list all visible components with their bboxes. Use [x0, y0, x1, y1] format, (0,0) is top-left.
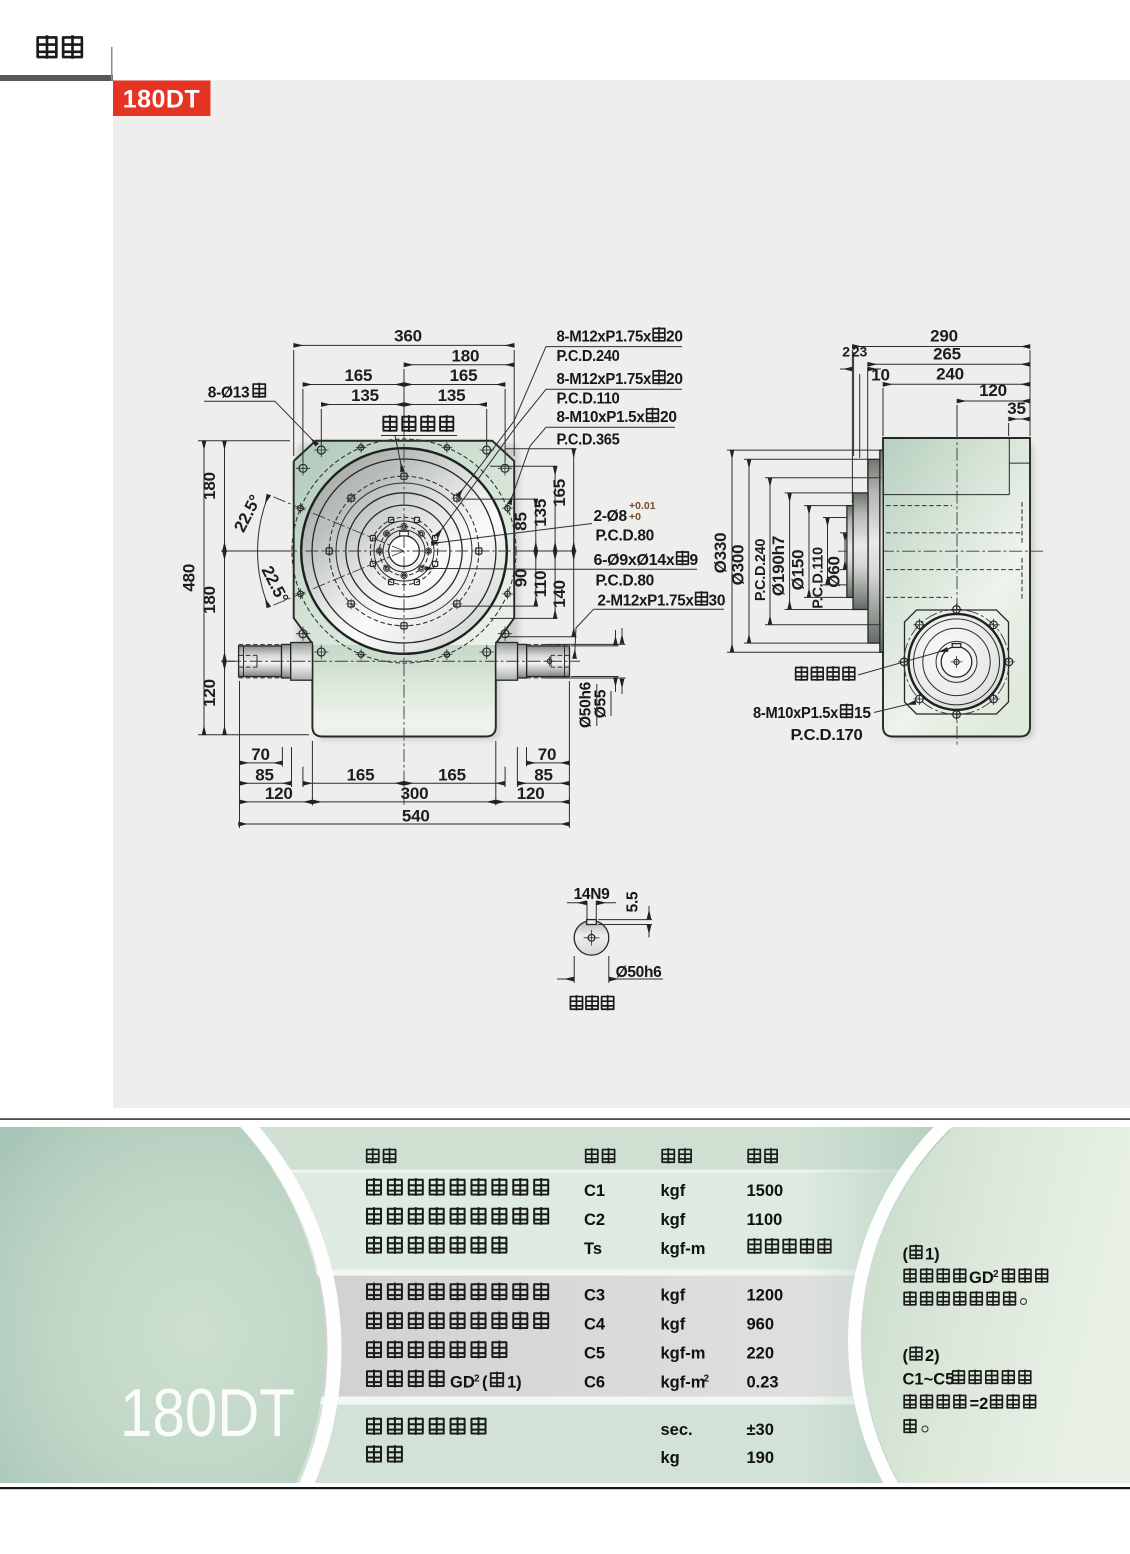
svg-text:8-M10xP1.5x: 8-M10xP1.5x — [753, 705, 839, 722]
svg-text:kgf: kgf — [661, 1182, 686, 1200]
svg-text:1100: 1100 — [747, 1211, 783, 1229]
svg-text:2: 2 — [842, 344, 850, 360]
svg-text:360: 360 — [394, 327, 422, 346]
svg-text:C3: C3 — [584, 1287, 605, 1305]
svg-text:240: 240 — [936, 364, 964, 383]
svg-text:(: ( — [482, 1374, 488, 1392]
svg-text:9: 9 — [690, 552, 699, 569]
svg-text:Ø150: Ø150 — [789, 550, 808, 591]
svg-text:8-M12xP1.75x: 8-M12xP1.75x — [557, 371, 652, 388]
svg-text:120: 120 — [200, 679, 219, 707]
svg-text:kgf-m: kgf-m — [661, 1345, 706, 1363]
svg-text:±30: ±30 — [747, 1421, 774, 1439]
svg-text:35: 35 — [1007, 399, 1026, 418]
svg-text:kg: kg — [661, 1449, 680, 1467]
svg-text:kgf: kgf — [661, 1287, 686, 1305]
svg-text:70: 70 — [251, 745, 270, 764]
svg-text:2-M12xP1.75x: 2-M12xP1.75x — [598, 593, 695, 610]
svg-text:+0: +0 — [629, 511, 641, 523]
svg-text:1): 1) — [507, 1374, 522, 1392]
svg-text:P.C.D.240: P.C.D.240 — [753, 539, 769, 602]
svg-text:2: 2 — [474, 1374, 480, 1385]
svg-text:C2: C2 — [584, 1211, 605, 1229]
svg-text:kgf: kgf — [661, 1316, 686, 1334]
svg-text:220: 220 — [747, 1345, 775, 1363]
svg-text:P.C.D.110: P.C.D.110 — [557, 390, 620, 407]
svg-text:P.C.D.365: P.C.D.365 — [557, 431, 621, 448]
svg-text:C1~C5: C1~C5 — [903, 1371, 955, 1389]
svg-text:P.C.D.80: P.C.D.80 — [596, 528, 655, 545]
svg-text:(: ( — [903, 1246, 909, 1264]
svg-text:C1: C1 — [584, 1182, 605, 1200]
svg-text:Ts: Ts — [584, 1240, 602, 1258]
svg-text:Ø60: Ø60 — [825, 556, 844, 588]
svg-text:14N9: 14N9 — [574, 886, 611, 903]
svg-text:90: 90 — [512, 569, 531, 588]
svg-text:540: 540 — [402, 806, 430, 825]
svg-text:Ø190h7: Ø190h7 — [769, 536, 788, 596]
svg-text:kgf: kgf — [661, 1211, 686, 1229]
svg-text:=2: =2 — [970, 1395, 989, 1413]
svg-text:kgf-m: kgf-m — [661, 1374, 706, 1392]
svg-text:135: 135 — [531, 499, 550, 527]
svg-text:165: 165 — [450, 366, 478, 385]
svg-text:P.C.D.240: P.C.D.240 — [557, 348, 620, 365]
svg-text:30: 30 — [709, 593, 726, 610]
svg-text:10: 10 — [871, 366, 890, 385]
svg-text:0.23: 0.23 — [747, 1374, 779, 1392]
svg-text:85: 85 — [255, 766, 274, 785]
svg-text:300: 300 — [401, 784, 429, 803]
svg-text:8-M12xP1.75x: 8-M12xP1.75x — [557, 329, 652, 346]
svg-text:960: 960 — [747, 1316, 775, 1334]
svg-text:120: 120 — [265, 784, 293, 803]
svg-text:kgf-m: kgf-m — [661, 1240, 706, 1258]
svg-text:20: 20 — [660, 409, 677, 426]
svg-text:Ø55: Ø55 — [593, 689, 610, 718]
svg-text:P.C.D.80: P.C.D.80 — [596, 573, 655, 590]
svg-text:GD: GD — [450, 1374, 475, 1392]
svg-text:P.C.D.170: P.C.D.170 — [791, 727, 863, 744]
svg-text:180: 180 — [200, 472, 219, 500]
svg-text:8-Ø13: 8-Ø13 — [208, 385, 250, 402]
svg-text:165: 165 — [438, 766, 466, 785]
svg-text:Ø50h6: Ø50h6 — [616, 964, 663, 981]
svg-text:sec.: sec. — [661, 1421, 693, 1439]
svg-text:20: 20 — [666, 371, 683, 388]
svg-text:165: 165 — [550, 479, 569, 507]
svg-text:Ø300: Ø300 — [729, 545, 748, 586]
svg-text:180DT: 180DT — [120, 1375, 295, 1451]
svg-text:8-M10xP1.5x: 8-M10xP1.5x — [557, 409, 646, 426]
svg-text:15: 15 — [854, 705, 871, 722]
svg-text:GD: GD — [969, 1269, 994, 1287]
svg-text:2): 2) — [925, 1347, 940, 1365]
svg-text:C6: C6 — [584, 1374, 605, 1392]
svg-text:2-Ø8: 2-Ø8 — [594, 508, 628, 525]
svg-text:180DT: 180DT — [123, 86, 201, 114]
svg-text:290: 290 — [930, 327, 958, 346]
svg-text:165: 165 — [345, 366, 373, 385]
svg-text:85: 85 — [534, 766, 553, 785]
svg-text:85: 85 — [512, 512, 531, 531]
svg-text:23: 23 — [852, 344, 868, 360]
svg-text:135: 135 — [351, 386, 379, 405]
svg-text:480: 480 — [180, 564, 199, 592]
svg-text:1500: 1500 — [747, 1182, 784, 1200]
svg-text:Ø330: Ø330 — [711, 533, 730, 574]
svg-text:180: 180 — [200, 586, 219, 614]
svg-text:180: 180 — [452, 346, 480, 365]
svg-text:165: 165 — [347, 766, 375, 785]
svg-text:2: 2 — [993, 1269, 999, 1280]
svg-text:110: 110 — [531, 571, 550, 598]
svg-text:C4: C4 — [584, 1316, 606, 1334]
svg-text:6-Ø9xØ14x: 6-Ø9xØ14x — [594, 552, 676, 569]
svg-text:1): 1) — [925, 1246, 940, 1264]
svg-text:135: 135 — [438, 386, 466, 405]
svg-text:20: 20 — [666, 329, 683, 346]
svg-text:120: 120 — [517, 784, 545, 803]
svg-text:1200: 1200 — [747, 1287, 784, 1305]
svg-text:190: 190 — [747, 1449, 775, 1467]
svg-text:70: 70 — [538, 745, 557, 764]
svg-text:C5: C5 — [584, 1345, 605, 1363]
svg-text:2: 2 — [704, 1374, 710, 1385]
svg-text:140: 140 — [550, 580, 569, 608]
svg-text:(: ( — [903, 1347, 909, 1365]
svg-text:265: 265 — [933, 344, 961, 363]
svg-text:120: 120 — [979, 381, 1007, 400]
svg-text:5.5: 5.5 — [625, 891, 642, 912]
